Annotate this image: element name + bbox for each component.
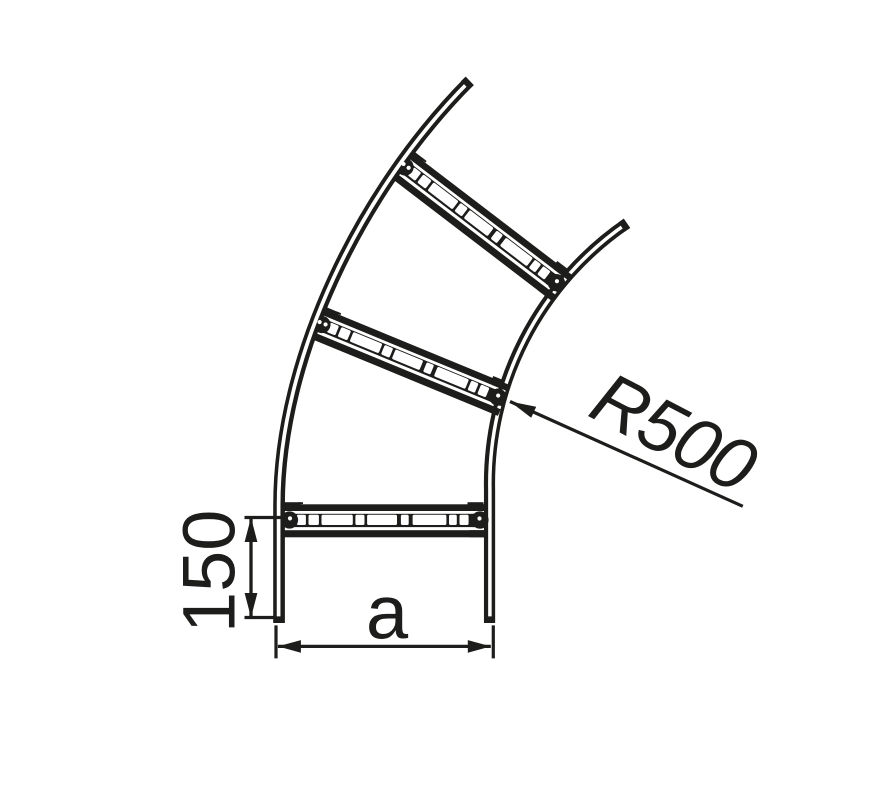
svg-text:R500: R500 bbox=[579, 356, 770, 509]
svg-text:150: 150 bbox=[168, 510, 251, 633]
svg-text:a: a bbox=[366, 571, 409, 656]
